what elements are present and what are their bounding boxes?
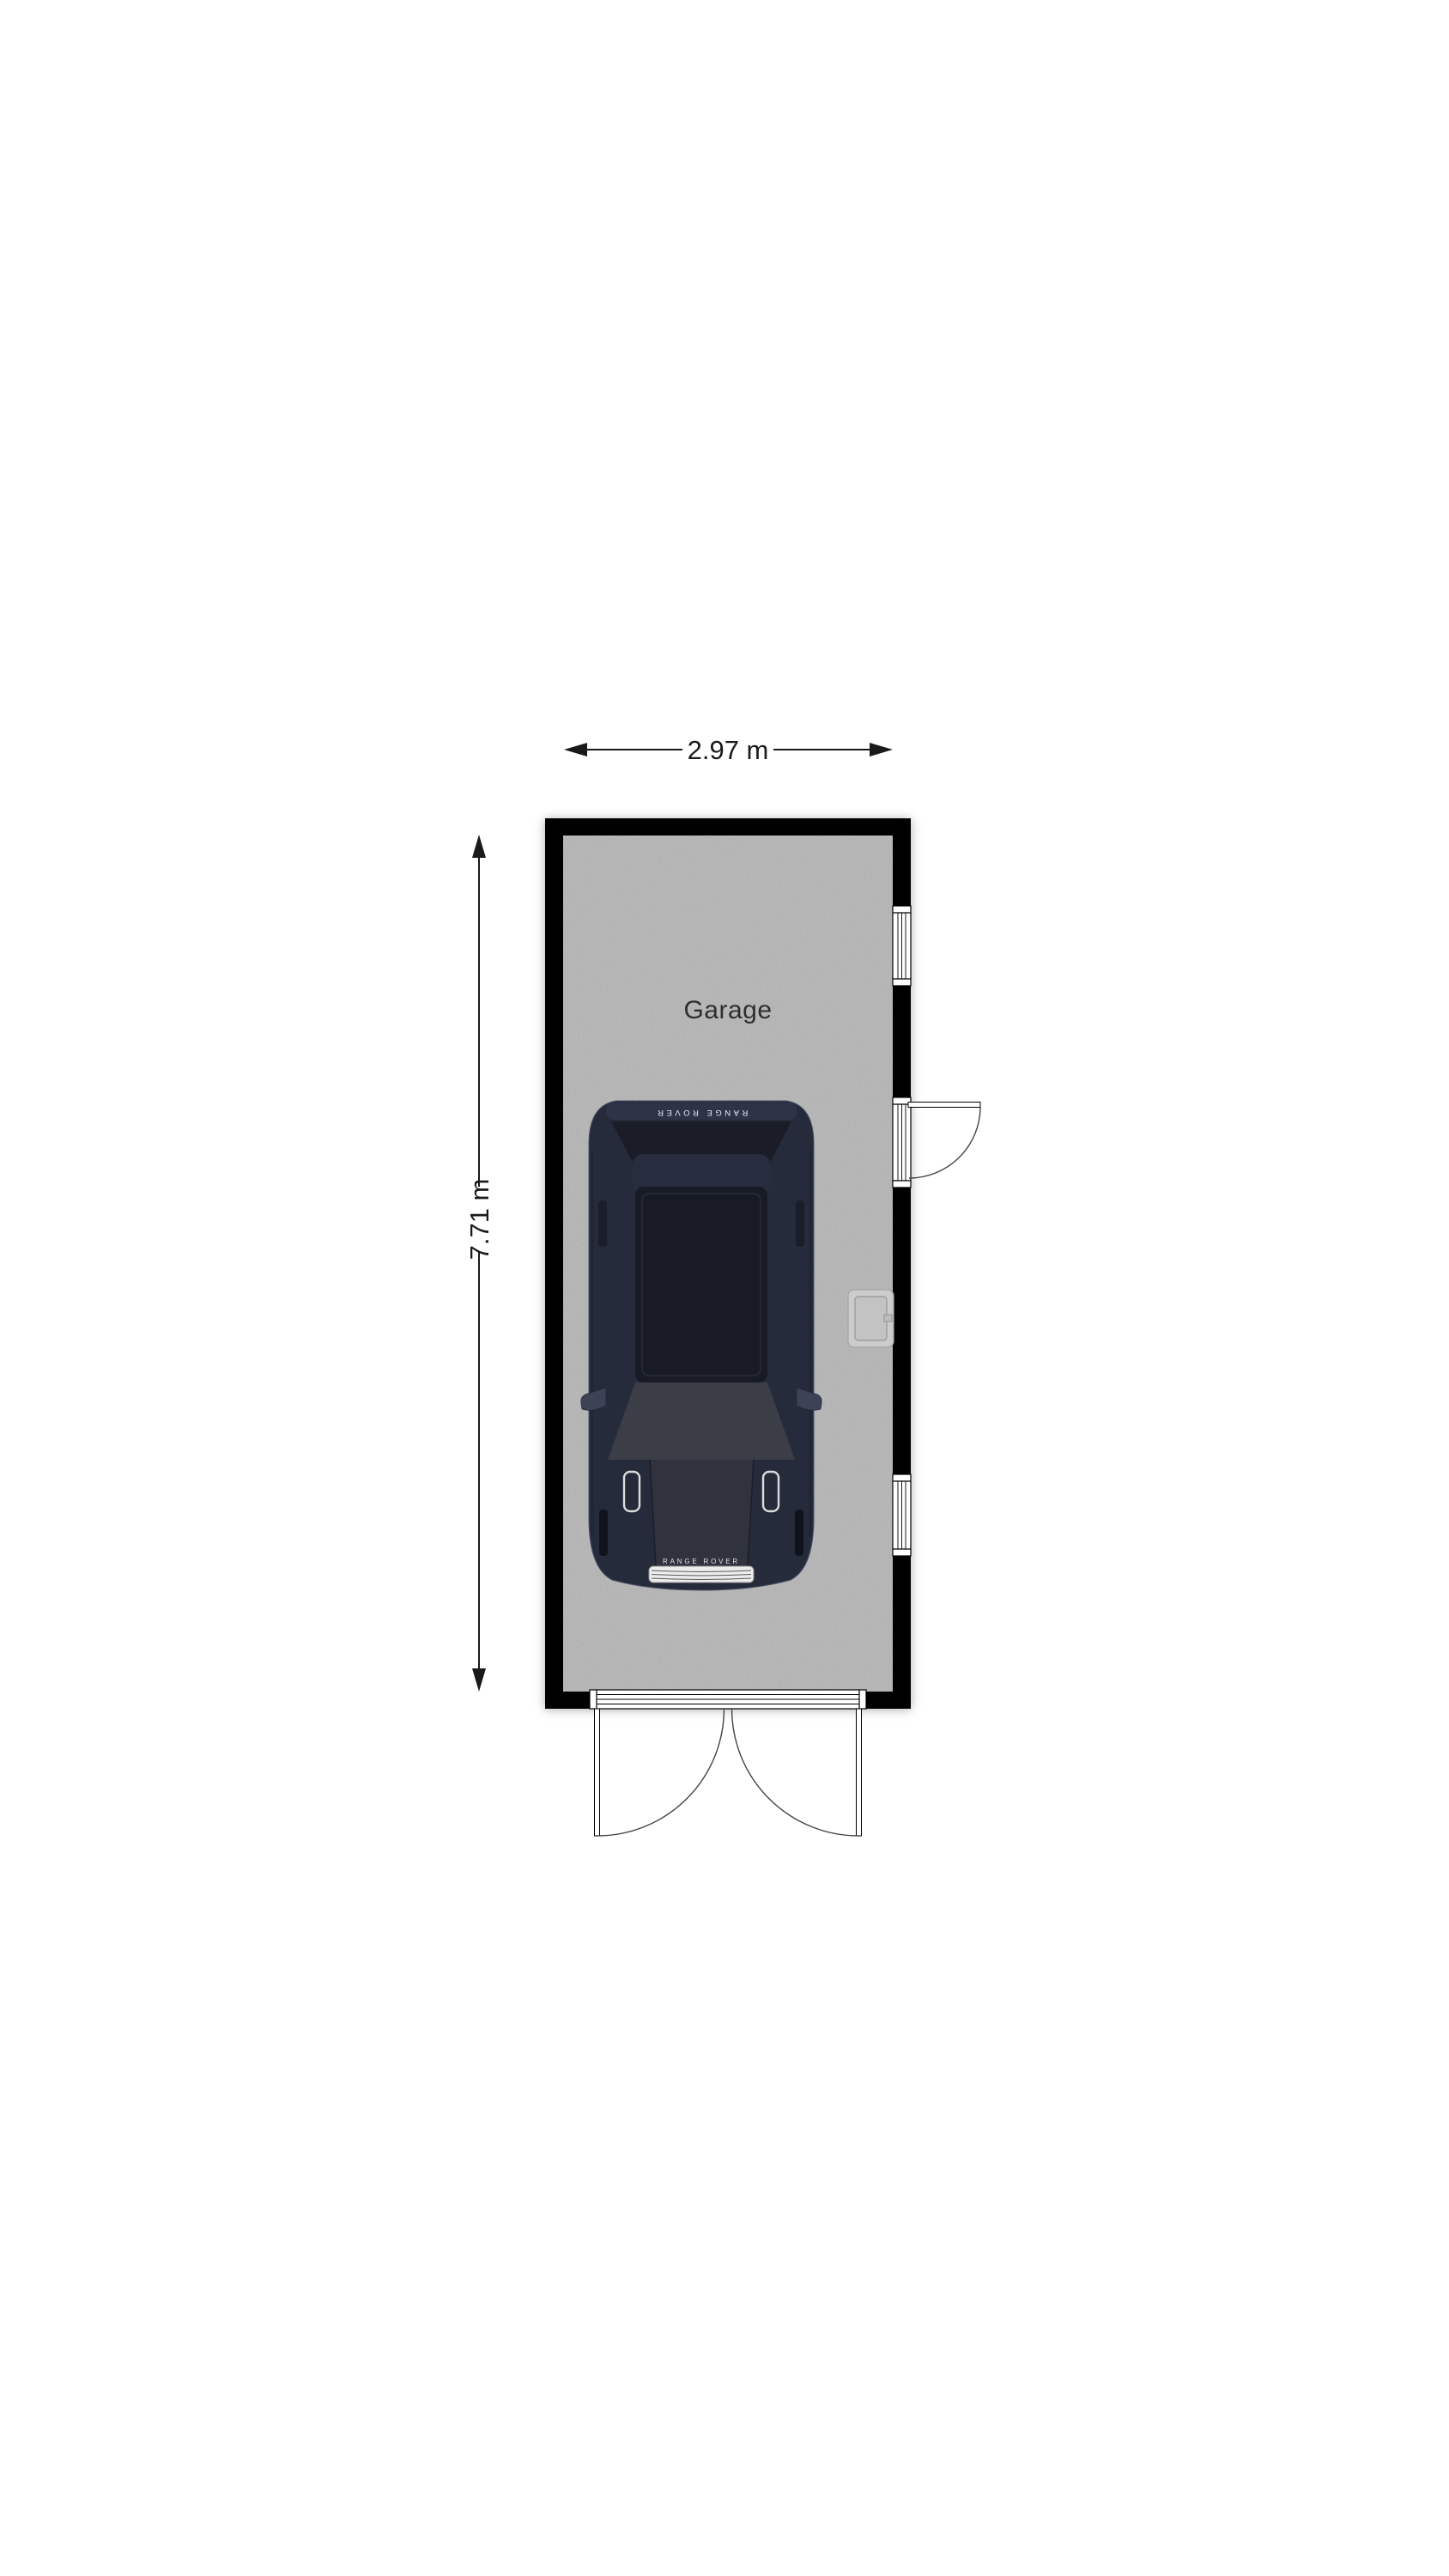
floorplan-page: 2.97 m 7.71 m: [0, 0, 1449, 2576]
car-wheel-front-left: [599, 1510, 608, 1556]
car-panoramic-roof: [635, 1187, 767, 1382]
wall-cabinet: [848, 1290, 894, 1347]
wall-cabinet-panel: [855, 1297, 887, 1340]
garage-door-leaf-left: [595, 1709, 600, 1836]
floorplan-canvas: 2.97 m 7.71 m: [0, 0, 1449, 2576]
dim-width-label: 2.97 m: [688, 735, 769, 765]
car-hood-panel: [650, 1460, 754, 1571]
car: RANGE ROVER RANGE ROVER: [581, 1101, 822, 1590]
car-rear-badge-text: RANGE ROVER: [655, 1108, 749, 1117]
car-front-badge-text: RANGE ROVER: [663, 1558, 740, 1565]
car-windshield: [608, 1382, 795, 1460]
car-headlight-left: [624, 1472, 640, 1511]
car-wheel-rear-right: [796, 1200, 804, 1247]
door-leaf: [908, 1103, 980, 1108]
wall-cabinet-handle: [884, 1315, 892, 1321]
garage-door-leaf-right: [857, 1709, 862, 1836]
car-wheel-front-right: [795, 1510, 803, 1556]
room-label: Garage: [683, 996, 772, 1024]
window-right-bottom: [893, 1474, 911, 1556]
car-grille: [649, 1566, 754, 1583]
window-right-top: [893, 906, 911, 986]
car-headlight-right: [763, 1472, 779, 1511]
dim-height-label: 7.71 m: [464, 1179, 494, 1261]
car-wheel-rear-left: [598, 1200, 607, 1247]
